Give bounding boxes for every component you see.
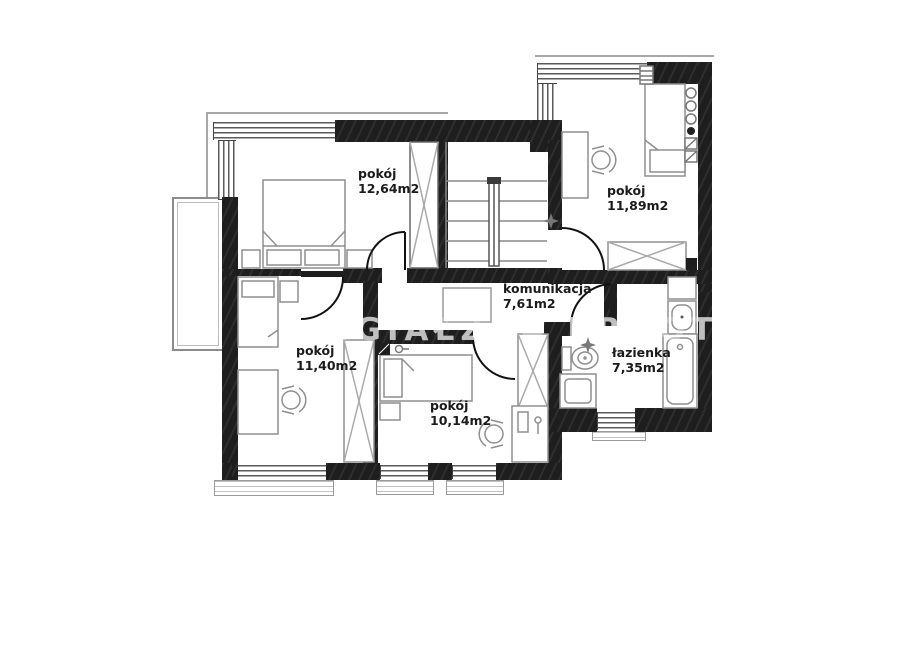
room-label-pokoj-1014: pokój 10,14m2 <box>430 398 491 428</box>
room-label-pokoj-1189: pokój 11,89m2 <box>607 183 668 213</box>
double-bed <box>263 180 345 268</box>
room-name: pokój <box>296 343 357 358</box>
room-label-pokoj-1140: pokój 11,40m2 <box>296 343 357 373</box>
room-name: komunikacja <box>503 281 592 296</box>
radiator <box>640 66 653 84</box>
single-bed <box>645 84 685 176</box>
room-name: łazienka <box>612 345 671 360</box>
single-bed <box>238 277 278 347</box>
room-name: pokój <box>358 166 419 181</box>
desk <box>562 132 588 198</box>
room-name: pokój <box>607 183 668 198</box>
chimney-shaft <box>410 142 438 268</box>
watermark-text: IGIAŁZOA BROOT <box>338 312 719 348</box>
washing-machine <box>560 374 596 408</box>
bathroom-cabinet <box>668 277 696 299</box>
wall-shelf <box>685 88 697 162</box>
desk <box>512 406 548 462</box>
toilet <box>562 347 598 370</box>
room-area: 10,14m2 <box>430 413 491 428</box>
desk-chair <box>592 146 616 174</box>
room-name: pokój <box>430 398 491 413</box>
room-label-komunikacja: komunikacja 7,61m2 <box>503 281 592 311</box>
room-area: 7,35m2 <box>612 360 671 375</box>
room-label-lazienka: łazienka 7,35m2 <box>612 345 671 375</box>
single-bed <box>380 355 472 401</box>
room-area: 11,40m2 <box>296 358 357 373</box>
room-label-pokoj-1264: pokój 12,64m2 <box>358 166 419 196</box>
nightstand <box>280 281 298 302</box>
desk-chair <box>282 386 306 414</box>
room-area: 11,89m2 <box>607 198 668 213</box>
floor-plan: IGIAŁZOA BROOT pokój 12,64m2 pokój 11,89… <box>0 0 900 646</box>
desk <box>238 370 278 434</box>
room-area: 7,61m2 <box>503 296 592 311</box>
staircase <box>446 142 547 268</box>
nightstand <box>242 250 260 268</box>
nightstand <box>380 403 400 420</box>
room-area: 12,64m2 <box>358 181 419 196</box>
wardrobe <box>608 242 697 270</box>
